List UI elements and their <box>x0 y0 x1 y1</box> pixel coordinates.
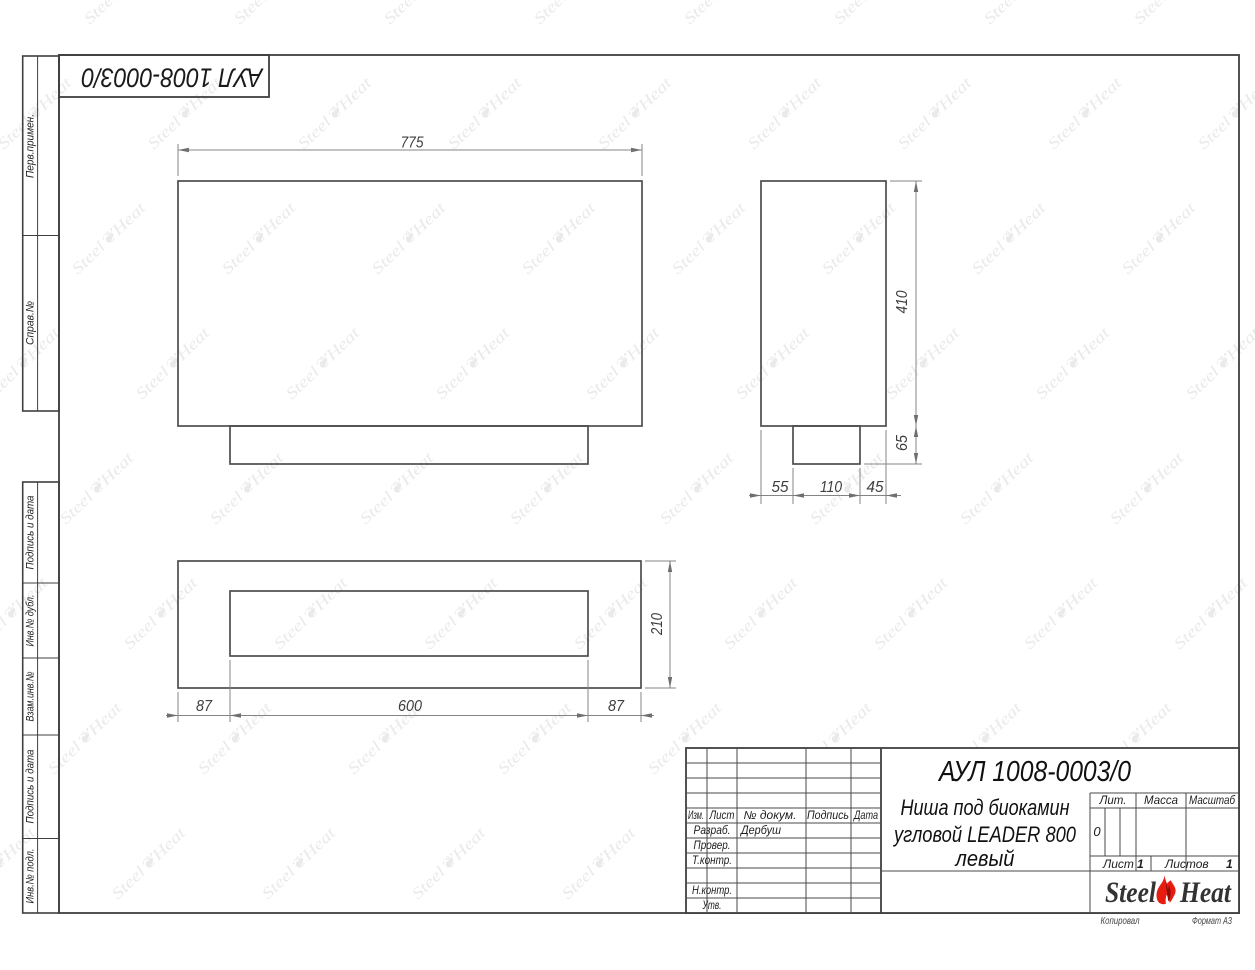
svg-text:Т.контр.: Т.контр. <box>692 853 732 867</box>
svg-text:Разраб.: Разраб. <box>694 823 731 837</box>
svg-text:Ниша под биокамин: Ниша под биокамин <box>901 795 1070 820</box>
svg-text:600: 600 <box>398 698 422 715</box>
svg-text:Листов: Листов <box>1164 857 1209 871</box>
svg-text:АУЛ 1008-0003/0: АУЛ 1008-0003/0 <box>82 62 265 92</box>
svg-text:210: 210 <box>649 613 666 636</box>
svg-text:0: 0 <box>1093 824 1101 839</box>
svg-text:Утв.: Утв. <box>702 898 722 912</box>
svg-text:Подпись и дата: Подпись и дата <box>25 750 37 824</box>
svg-text:Инв.№ подл.: Инв.№ подл. <box>25 849 37 904</box>
svg-text:Лист: Лист <box>709 810 735 822</box>
svg-text:Лист: Лист <box>1102 857 1134 871</box>
svg-text:Справ.№: Справ.№ <box>25 301 37 345</box>
svg-text:Heat: Heat <box>1179 876 1232 909</box>
svg-text:Н.контр.: Н.контр. <box>692 883 732 897</box>
svg-text:Провер.: Провер. <box>694 838 731 852</box>
svg-text:410: 410 <box>894 290 911 313</box>
svg-text:Steel: Steel <box>1105 876 1157 909</box>
svg-text:Перв.примен.: Перв.примен. <box>25 114 37 178</box>
svg-text:775: 775 <box>401 135 424 152</box>
svg-text:87: 87 <box>196 698 213 715</box>
svg-text:Масштаб: Масштаб <box>1189 795 1235 807</box>
svg-text:Подпись: Подпись <box>807 810 849 822</box>
svg-text:Копировал: Копировал <box>1101 915 1140 927</box>
svg-text:АУЛ 1008-0003/0: АУЛ 1008-0003/0 <box>937 756 1131 788</box>
svg-text:1: 1 <box>1137 857 1144 871</box>
svg-text:45: 45 <box>867 479 884 496</box>
svg-text:угловой LEADER 800: угловой LEADER 800 <box>892 822 1076 847</box>
svg-text:Подпись и дата: Подпись и дата <box>25 496 37 570</box>
svg-text:Взам.инв.№: Взам.инв.№ <box>25 671 37 721</box>
svg-text:110: 110 <box>820 479 842 496</box>
svg-text:Инв.№ дубл.: Инв.№ дубл. <box>25 595 37 647</box>
svg-text:№ докум.: № докум. <box>744 810 797 822</box>
svg-text:65: 65 <box>894 435 911 451</box>
svg-text:Масса: Масса <box>1144 795 1178 807</box>
svg-text:55: 55 <box>772 479 789 496</box>
svg-text:Лит.: Лит. <box>1099 795 1127 807</box>
svg-text:Дербуш: Дербуш <box>739 823 781 837</box>
svg-text:левый: левый <box>954 846 1015 871</box>
svg-text:1: 1 <box>1226 857 1233 871</box>
svg-text:Изм.: Изм. <box>688 810 704 822</box>
svg-text:Дата: Дата <box>852 810 878 822</box>
svg-text:87: 87 <box>608 698 625 715</box>
svg-text:Формат А3: Формат А3 <box>1192 915 1232 927</box>
